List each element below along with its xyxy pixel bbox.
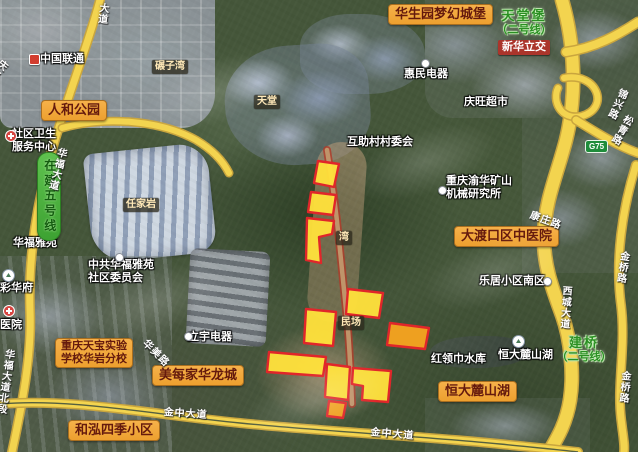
label-dadukou-tcm-hospital[interactable]: 大渡口区中医院: [454, 226, 559, 247]
huimin-poi-icon[interactable]: [421, 59, 430, 68]
label-road-dadao: 大道: [95, 2, 109, 25]
label-road-jinqiao-north: 金桥路: [613, 250, 629, 284]
health-center-icon[interactable]: [5, 130, 17, 142]
label-tianbao-school-line-1: 重庆天宝实验: [61, 340, 127, 353]
label-leju-south[interactable]: 乐居小区南区: [479, 275, 545, 288]
label-road-xicheng: 西城大道: [557, 285, 572, 330]
label-honglingjin-reservoir[interactable]: 红领巾水库: [431, 353, 486, 366]
label-huashengyuan-castle[interactable]: 华生园梦幻城堡: [388, 4, 493, 25]
hospital-poi-icon[interactable]: [3, 305, 15, 317]
label-road-qinglu: 庆路: [0, 56, 9, 80]
unicom-logo-icon[interactable]: [29, 54, 40, 65]
label-qingwang-supermarket[interactable]: 庆旺超市: [464, 96, 508, 109]
caihuafu-poi-icon[interactable]: [2, 269, 15, 282]
label-yuhua-mining-institute[interactable]: 重庆渝华矿山机械研究所: [446, 175, 512, 200]
label-station-jianqiao[interactable]: 建桥（二号线）: [551, 336, 617, 364]
label-hehong-siji[interactable]: 和泓四季小区: [68, 420, 160, 441]
label-wan[interactable]: 湾: [336, 231, 352, 245]
label-hospital[interactable]: 医院: [0, 319, 22, 332]
label-yuhua-mining-institute-line-1: 重庆渝华矿山: [446, 175, 512, 188]
label-road-jinqiao-south: 金桥路: [616, 370, 630, 404]
label-community-health-center[interactable]: 社区卫生服务中心: [12, 128, 56, 153]
label-hengda-lushanhu-small[interactable]: 恒大麓山湖: [498, 349, 553, 362]
label-nianziwan[interactable]: 碾子湾: [152, 60, 188, 74]
label-huzhucun-committee[interactable]: 互助村村委会: [347, 136, 413, 149]
satellite-map[interactable]: 华生园梦幻城堡人和公园大渡口区中医院美每家华龙城重庆天宝实验学校华岩分校和泓四季…: [0, 0, 638, 452]
label-tianbao-school[interactable]: 重庆天宝实验学校华岩分校: [55, 338, 133, 368]
label-xinhua-interchange[interactable]: 新华立交: [498, 40, 550, 55]
label-renjiayan[interactable]: 任家岩: [123, 198, 159, 212]
map-labels-layer: 华生园梦幻城堡人和公园大渡口区中医院美每家华龙城重庆天宝实验学校华岩分校和泓四季…: [0, 0, 638, 452]
committee-poi-icon[interactable]: [115, 253, 124, 262]
label-station-tiantangbao-line-1: 天堂堡: [490, 9, 558, 24]
label-minchang[interactable]: 民场: [338, 316, 364, 330]
hengda-poi-icon[interactable]: [512, 335, 525, 348]
label-huimin-dianqi[interactable]: 惠民电器: [404, 68, 448, 81]
label-road-jinzhong-east: 金中大道: [370, 427, 415, 442]
label-station-tiantangbao-line-2: （二号线）: [490, 24, 558, 37]
label-caihuafu[interactable]: 彩华府: [0, 282, 33, 295]
label-liyu-dianqi[interactable]: 立宇电器: [188, 331, 232, 344]
label-g75-shield: G75: [585, 140, 608, 153]
label-station-tiantangbao[interactable]: 天堂堡（二号线）: [490, 9, 558, 37]
label-huafu-committee[interactable]: 中共华福雅苑社区委员会: [88, 259, 154, 284]
label-china-unicom[interactable]: 中国联通: [40, 53, 84, 66]
label-road-jinzhong-west: 金中大道: [163, 407, 208, 422]
liyu-poi-icon[interactable]: [184, 332, 193, 341]
label-yuhua-mining-institute-line-2: 机械研究所: [446, 188, 512, 201]
label-tianbao-school-line-2: 学校华岩分校: [61, 353, 127, 366]
label-huafu-committee-line-2: 社区委员会: [88, 272, 154, 285]
label-station-jianqiao-line-2: （二号线）: [551, 351, 617, 364]
label-road-huafu-north: 华福大道北段: [0, 348, 14, 415]
label-renhe-park[interactable]: 人和公园: [41, 100, 107, 121]
label-tiantang[interactable]: 天堂: [254, 95, 280, 109]
label-hengda-lushanhu-big[interactable]: 恒大麓山湖: [438, 381, 517, 402]
leju-poi-icon[interactable]: [543, 277, 552, 286]
label-meimeijia-hualongcheng[interactable]: 美每家华龙城: [152, 365, 244, 386]
label-community-health-center-line-1: 社区卫生: [12, 128, 56, 141]
institute-poi-icon[interactable]: [438, 186, 447, 195]
label-station-jianqiao-line-1: 建桥: [551, 336, 617, 351]
